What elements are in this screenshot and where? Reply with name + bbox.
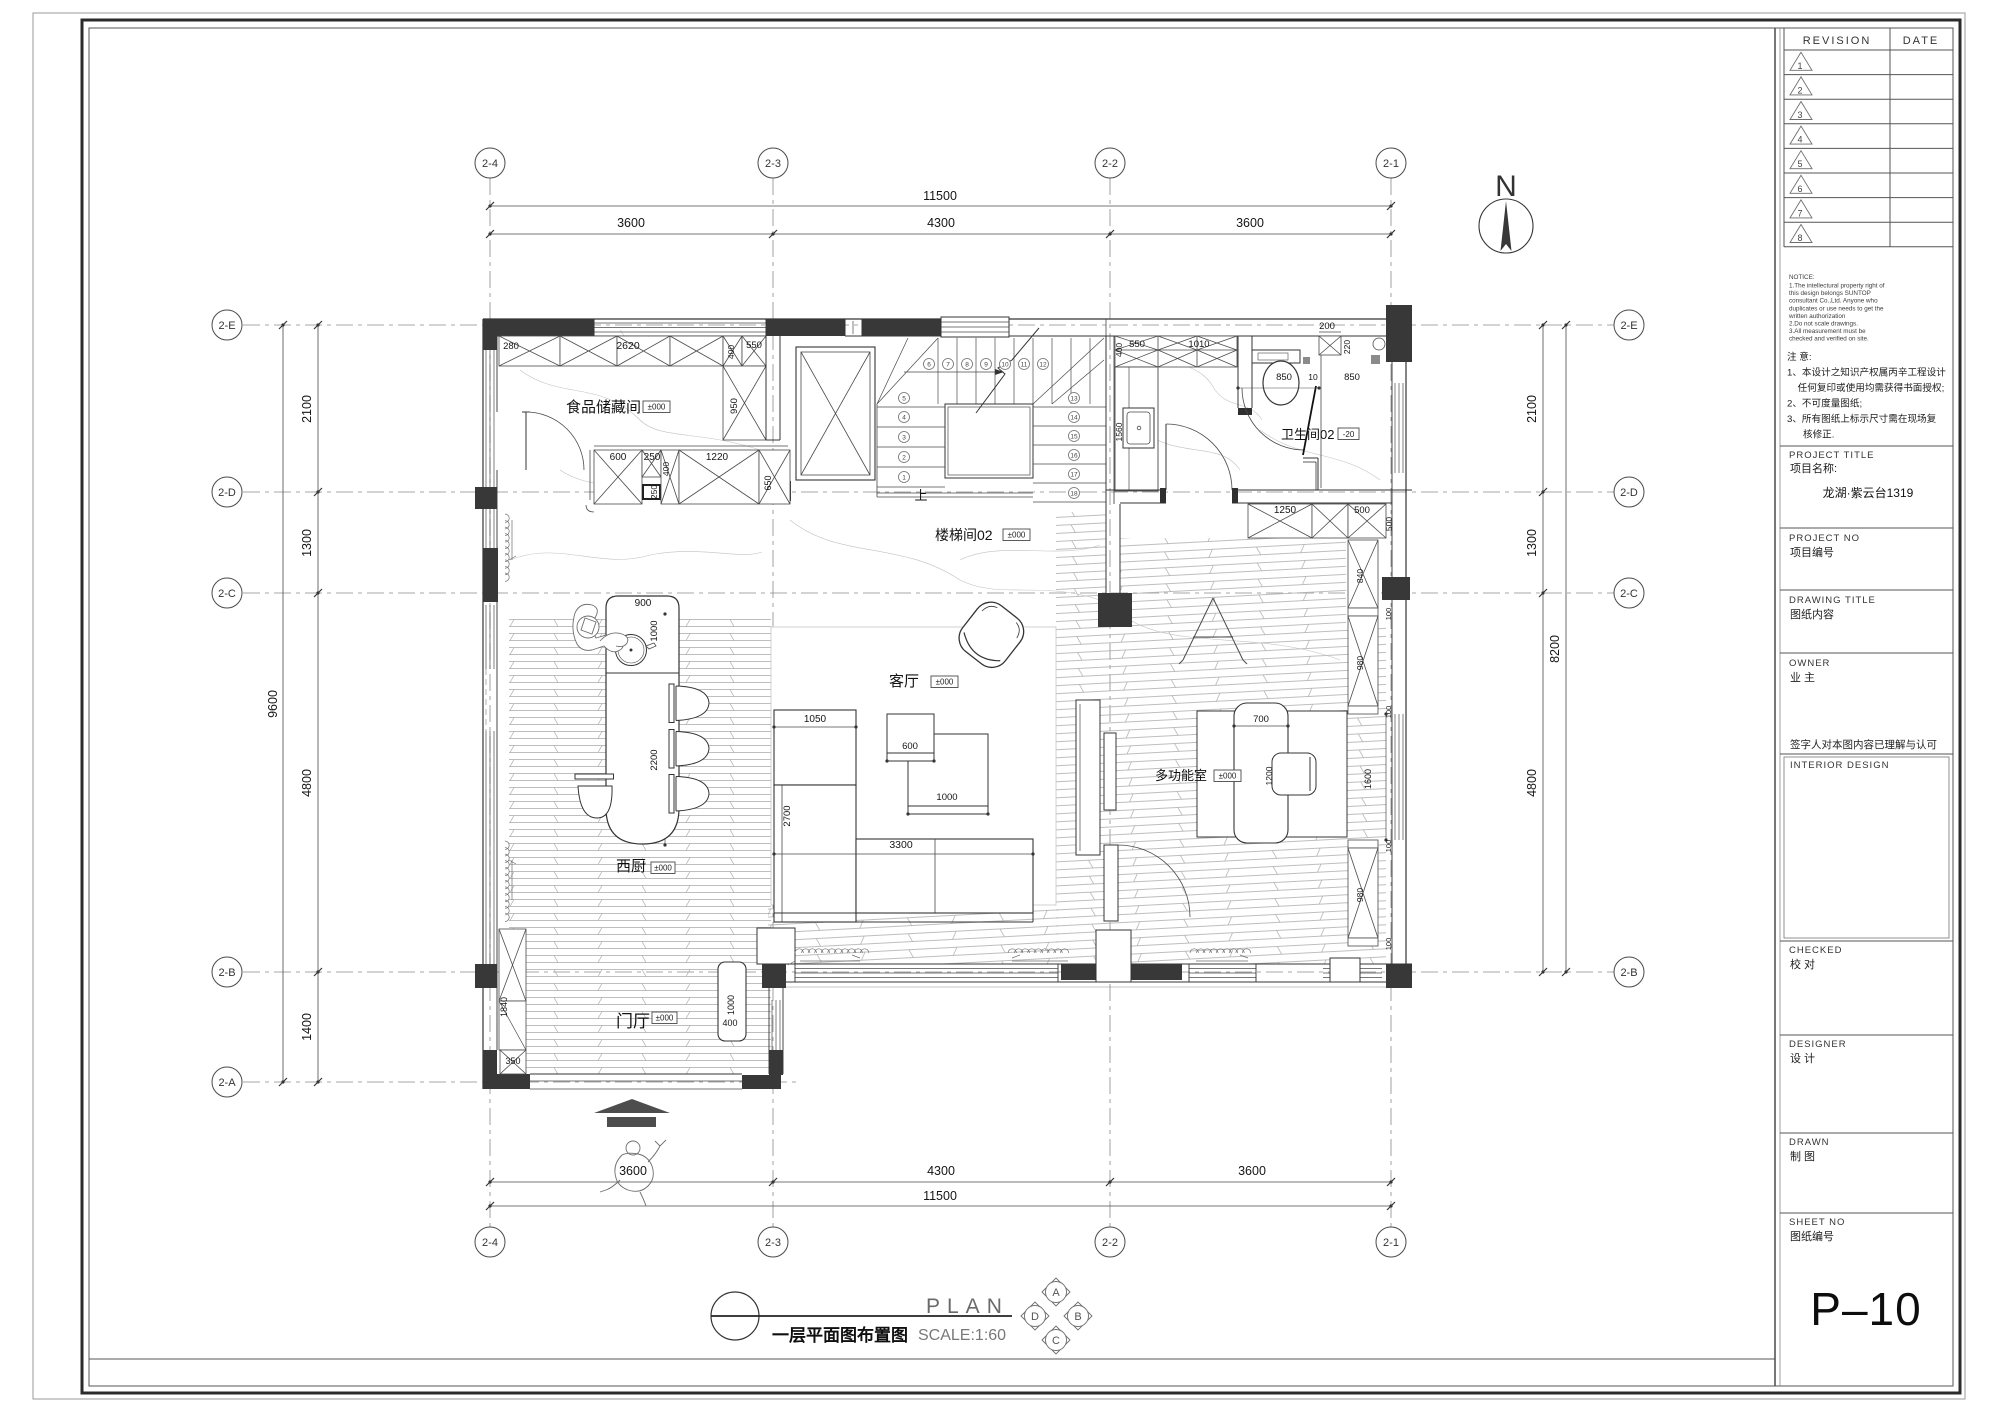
svg-text:400: 400 <box>722 1018 737 1028</box>
svg-text:checked and verified on site.: checked and verified on site. <box>1789 336 1869 343</box>
svg-text:400: 400 <box>661 462 671 476</box>
svg-text:3、所有图纸上标示尺寸需在现场复: 3、所有图纸上标示尺寸需在现场复 <box>1787 413 1937 425</box>
svg-text:2、不可度量图纸;: 2、不可度量图纸; <box>1787 398 1862 410</box>
svg-text:2200: 2200 <box>649 749 660 770</box>
svg-text:2: 2 <box>1797 85 1802 95</box>
svg-text:±000: ±000 <box>1219 772 1237 781</box>
svg-text:this design belongs SUNTOP: this design belongs SUNTOP <box>1789 290 1871 297</box>
svg-text:CHECKED: CHECKED <box>1789 945 1842 956</box>
svg-text:2-4: 2-4 <box>482 158 498 170</box>
svg-text:2.Do not scale drawings.: 2.Do not scale drawings. <box>1789 321 1858 328</box>
svg-text:1200: 1200 <box>1264 766 1274 785</box>
svg-text:3600: 3600 <box>1238 1164 1266 1178</box>
svg-text:3600: 3600 <box>617 216 645 230</box>
svg-text:2-C: 2-C <box>1620 588 1638 600</box>
svg-text:制 图: 制 图 <box>1790 1150 1815 1163</box>
svg-text:项目名称:: 项目名称: <box>1790 461 1837 475</box>
svg-text:2-4: 2-4 <box>482 1237 498 1249</box>
svg-text:2-2: 2-2 <box>1102 1237 1118 1249</box>
svg-text:SHEET NO: SHEET NO <box>1789 1217 1845 1228</box>
svg-text:500: 500 <box>1384 517 1394 531</box>
svg-text:200: 200 <box>1319 321 1335 332</box>
svg-text:650: 650 <box>763 475 773 490</box>
svg-text:11: 11 <box>1021 362 1028 369</box>
svg-text:950: 950 <box>729 398 740 414</box>
svg-text:6: 6 <box>1797 184 1802 194</box>
svg-text:PROJECT NO: PROJECT NO <box>1789 533 1860 544</box>
svg-text:7: 7 <box>1797 208 1802 218</box>
svg-text:3600: 3600 <box>1236 216 1264 230</box>
svg-text:上: 上 <box>914 488 927 503</box>
svg-text:16: 16 <box>1070 453 1078 460</box>
svg-text:PROJECT TITLE: PROJECT TITLE <box>1789 450 1875 461</box>
svg-text:B: B <box>1074 1311 1081 1323</box>
svg-text:5: 5 <box>902 396 906 403</box>
svg-text:980: 980 <box>1355 656 1365 670</box>
svg-text:250: 250 <box>644 452 661 463</box>
svg-text:600: 600 <box>902 741 918 752</box>
svg-text:项目编号: 项目编号 <box>1790 545 1834 559</box>
svg-text:2700: 2700 <box>782 805 793 826</box>
svg-text:1840: 1840 <box>499 997 509 1017</box>
svg-text:4: 4 <box>1797 135 1802 145</box>
svg-text:840: 840 <box>1355 569 1365 583</box>
svg-text:NOTICE:: NOTICE: <box>1789 274 1815 281</box>
svg-text:1300: 1300 <box>1525 529 1539 557</box>
svg-text:550: 550 <box>746 340 762 351</box>
svg-text:15: 15 <box>1070 434 1078 441</box>
svg-text:业 主: 业 主 <box>1790 671 1815 684</box>
svg-text:4800: 4800 <box>300 769 314 797</box>
svg-text:2: 2 <box>902 455 906 462</box>
svg-text:4800: 4800 <box>1525 769 1539 797</box>
svg-text:7: 7 <box>946 362 950 369</box>
svg-text:350: 350 <box>505 1056 520 1066</box>
svg-text:400: 400 <box>1114 343 1124 357</box>
svg-text:2620: 2620 <box>616 340 640 352</box>
svg-text:-20: -20 <box>1343 430 1355 439</box>
svg-text:1: 1 <box>902 475 906 482</box>
svg-text:INTERIOR DESIGN: INTERIOR DESIGN <box>1790 760 1889 771</box>
svg-text:龙湖·紫云台1319: 龙湖·紫云台1319 <box>1823 485 1914 500</box>
svg-text:2-D: 2-D <box>218 487 236 499</box>
svg-text:SCALE:1:60: SCALE:1:60 <box>918 1327 1006 1344</box>
svg-text:卫生间02: 卫生间02 <box>1281 427 1334 442</box>
svg-text:14: 14 <box>1070 415 1078 422</box>
svg-text:3.All measurement must be: 3.All measurement must be <box>1789 328 1866 335</box>
svg-text:1000: 1000 <box>726 995 736 1015</box>
svg-text:4300: 4300 <box>927 216 955 230</box>
svg-text:8: 8 <box>1797 233 1802 243</box>
svg-text:3: 3 <box>902 435 906 442</box>
svg-text:2-B: 2-B <box>1620 967 1637 979</box>
svg-text:2-3: 2-3 <box>765 1237 781 1249</box>
svg-text:签字人对本图内容已理解与认可: 签字人对本图内容已理解与认可 <box>1790 738 1937 751</box>
svg-text:校 对: 校 对 <box>1790 957 1815 971</box>
svg-text:8200: 8200 <box>1548 635 1562 663</box>
svg-text:2-1: 2-1 <box>1383 158 1399 170</box>
svg-text:1: 1 <box>1797 61 1802 71</box>
svg-text:2-3: 2-3 <box>765 158 781 170</box>
svg-text:±000: ±000 <box>654 864 672 873</box>
svg-text:±000: ±000 <box>1008 531 1026 540</box>
svg-text:10: 10 <box>1308 372 1318 382</box>
svg-text:8: 8 <box>965 362 969 369</box>
svg-text:REVISION: REVISION <box>1803 35 1872 47</box>
svg-text:3: 3 <box>1797 110 1802 120</box>
svg-text:±000: ±000 <box>648 403 666 412</box>
svg-text:2-B: 2-B <box>218 967 235 979</box>
svg-text:DRAWING TITLE: DRAWING TITLE <box>1789 595 1876 606</box>
svg-text:980: 980 <box>1355 888 1365 902</box>
svg-text:1000: 1000 <box>649 620 660 641</box>
svg-text:13: 13 <box>1070 396 1078 403</box>
svg-text:500: 500 <box>1354 505 1370 516</box>
svg-text:100: 100 <box>1384 608 1393 621</box>
svg-text:1010: 1010 <box>1188 339 1209 350</box>
svg-text:4300: 4300 <box>927 1164 955 1178</box>
svg-text:12: 12 <box>1039 362 1047 369</box>
svg-text:OWNER: OWNER <box>1789 658 1830 669</box>
svg-text:100: 100 <box>1384 840 1393 853</box>
svg-text:220: 220 <box>1342 340 1352 354</box>
svg-text:PLAN: PLAN <box>926 1295 1009 1318</box>
svg-text:一层平面图布置图: 一层平面图布置图 <box>772 1325 908 1345</box>
svg-text:设 计: 设 计 <box>1790 1052 1815 1065</box>
svg-text:2-A: 2-A <box>218 1077 236 1089</box>
svg-text:2-E: 2-E <box>1620 320 1637 332</box>
svg-text:written authorization: written authorization <box>1788 313 1846 320</box>
svg-text:1.The intellectural property r: 1.The intellectural property right of <box>1789 283 1885 290</box>
svg-text:DESIGNER: DESIGNER <box>1789 1039 1847 1050</box>
svg-text:9600: 9600 <box>266 690 280 718</box>
svg-text:P–10: P–10 <box>1810 1283 1921 1335</box>
svg-text:A: A <box>1052 1287 1060 1299</box>
svg-text:任何复印或使用均需获得书面授权;: 任何复印或使用均需获得书面授权; <box>1787 382 1944 394</box>
svg-text:1、本设计之知识产权属丙辛工程设计: 1、本设计之知识产权属丙辛工程设计 <box>1787 367 1946 379</box>
svg-text:100: 100 <box>1384 706 1393 719</box>
svg-text:6: 6 <box>927 362 931 369</box>
svg-text:280: 280 <box>503 341 519 352</box>
svg-text:3600: 3600 <box>619 1164 647 1178</box>
svg-text:1600: 1600 <box>1363 769 1373 789</box>
svg-text:D: D <box>1031 1311 1039 1323</box>
svg-text:2-D: 2-D <box>1620 487 1638 499</box>
svg-text:10: 10 <box>1001 362 1009 369</box>
svg-text:2-1: 2-1 <box>1383 1237 1399 1249</box>
svg-text:±000: ±000 <box>656 1014 674 1023</box>
svg-text:N: N <box>1495 170 1517 203</box>
svg-text:consultant Co.,Ltd. Anyone who: consultant Co.,Ltd. Anyone who <box>1789 298 1878 305</box>
svg-text:600: 600 <box>610 452 627 463</box>
svg-text:400: 400 <box>726 345 736 359</box>
svg-text:4: 4 <box>902 415 906 422</box>
svg-text:11500: 11500 <box>923 189 957 203</box>
svg-text:1000: 1000 <box>936 792 957 803</box>
svg-text:图纸内容: 图纸内容 <box>1790 607 1834 621</box>
svg-text:3300: 3300 <box>889 839 913 851</box>
svg-text:多功能室: 多功能室 <box>1155 768 1207 783</box>
svg-text:550: 550 <box>1129 339 1145 350</box>
svg-text:17: 17 <box>1070 472 1078 479</box>
svg-text:客厅: 客厅 <box>889 673 919 690</box>
svg-text:2-C: 2-C <box>218 588 236 600</box>
svg-text:18: 18 <box>1070 491 1078 498</box>
svg-text:DRAWN: DRAWN <box>1789 1137 1830 1148</box>
svg-text:1250: 1250 <box>1274 505 1297 516</box>
svg-text:C: C <box>1052 1335 1060 1347</box>
svg-text:900: 900 <box>635 598 652 609</box>
svg-text:2100: 2100 <box>1525 395 1539 423</box>
svg-text:100: 100 <box>1384 938 1393 951</box>
svg-text:2100: 2100 <box>300 395 314 423</box>
svg-text:250: 250 <box>649 485 659 499</box>
svg-text:9: 9 <box>984 362 988 369</box>
svg-text:门厅: 门厅 <box>616 1012 650 1031</box>
svg-text:duplicates or use needs to get: duplicates or use needs to get the <box>1789 305 1884 312</box>
svg-text:1300: 1300 <box>300 529 314 557</box>
svg-text:850: 850 <box>1344 372 1360 383</box>
svg-text:2-E: 2-E <box>218 320 235 332</box>
svg-text:850: 850 <box>1276 372 1292 383</box>
svg-text:西厨: 西厨 <box>616 858 646 875</box>
svg-text:核修正.: 核修正. <box>1787 429 1834 441</box>
svg-text:5: 5 <box>1797 159 1802 169</box>
svg-text:图纸编号: 图纸编号 <box>1790 1229 1834 1243</box>
svg-text:DATE: DATE <box>1903 35 1940 47</box>
svg-text:注 意:: 注 意: <box>1787 351 1812 363</box>
svg-text:楼梯间02: 楼梯间02 <box>935 527 993 543</box>
svg-text:食品储藏间: 食品储藏间 <box>566 399 641 416</box>
svg-text:2-2: 2-2 <box>1102 158 1118 170</box>
svg-text:1220: 1220 <box>706 452 729 463</box>
svg-text:1050: 1050 <box>804 714 827 725</box>
svg-text:±000: ±000 <box>936 678 954 687</box>
svg-text:11500: 11500 <box>923 1189 957 1203</box>
svg-text:1400: 1400 <box>300 1013 314 1041</box>
svg-text:700: 700 <box>1253 714 1269 725</box>
